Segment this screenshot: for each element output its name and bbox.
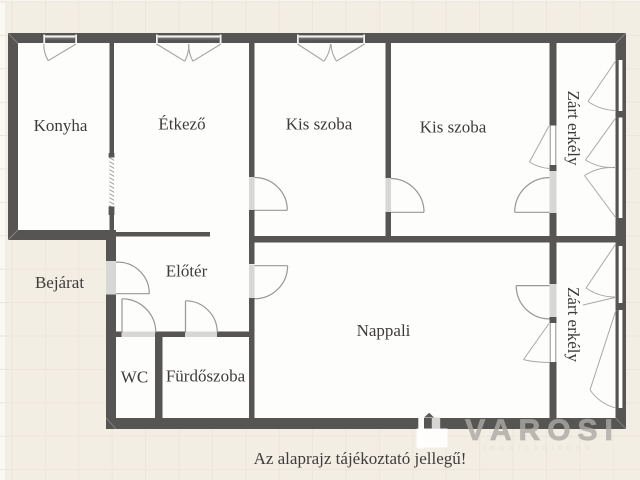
svg-text:Kis szoba: Kis szoba	[286, 115, 353, 134]
svg-text:Fürdőszoba: Fürdőszoba	[166, 367, 246, 386]
svg-text:Konyha: Konyha	[34, 116, 88, 135]
svg-text:Nappali: Nappali	[357, 321, 411, 340]
svg-text:INGATLANIRODA: INGATLANIRODA	[484, 446, 594, 453]
svg-text:Bejárat: Bejárat	[35, 273, 84, 292]
svg-text:Előtér: Előtér	[166, 262, 208, 281]
svg-text:Kis szoba: Kis szoba	[420, 118, 487, 137]
svg-text:Étkező: Étkező	[158, 115, 205, 134]
svg-text:Zárt erkély: Zárt erkély	[564, 287, 583, 363]
svg-text:Zárt erkély: Zárt erkély	[564, 90, 583, 166]
svg-text:Az alaprajz tájékoztató jelleg: Az alaprajz tájékoztató jellegű!	[254, 449, 467, 468]
svg-text:WC: WC	[121, 368, 148, 387]
svg-text:VAROSI: VAROSI	[465, 414, 620, 447]
